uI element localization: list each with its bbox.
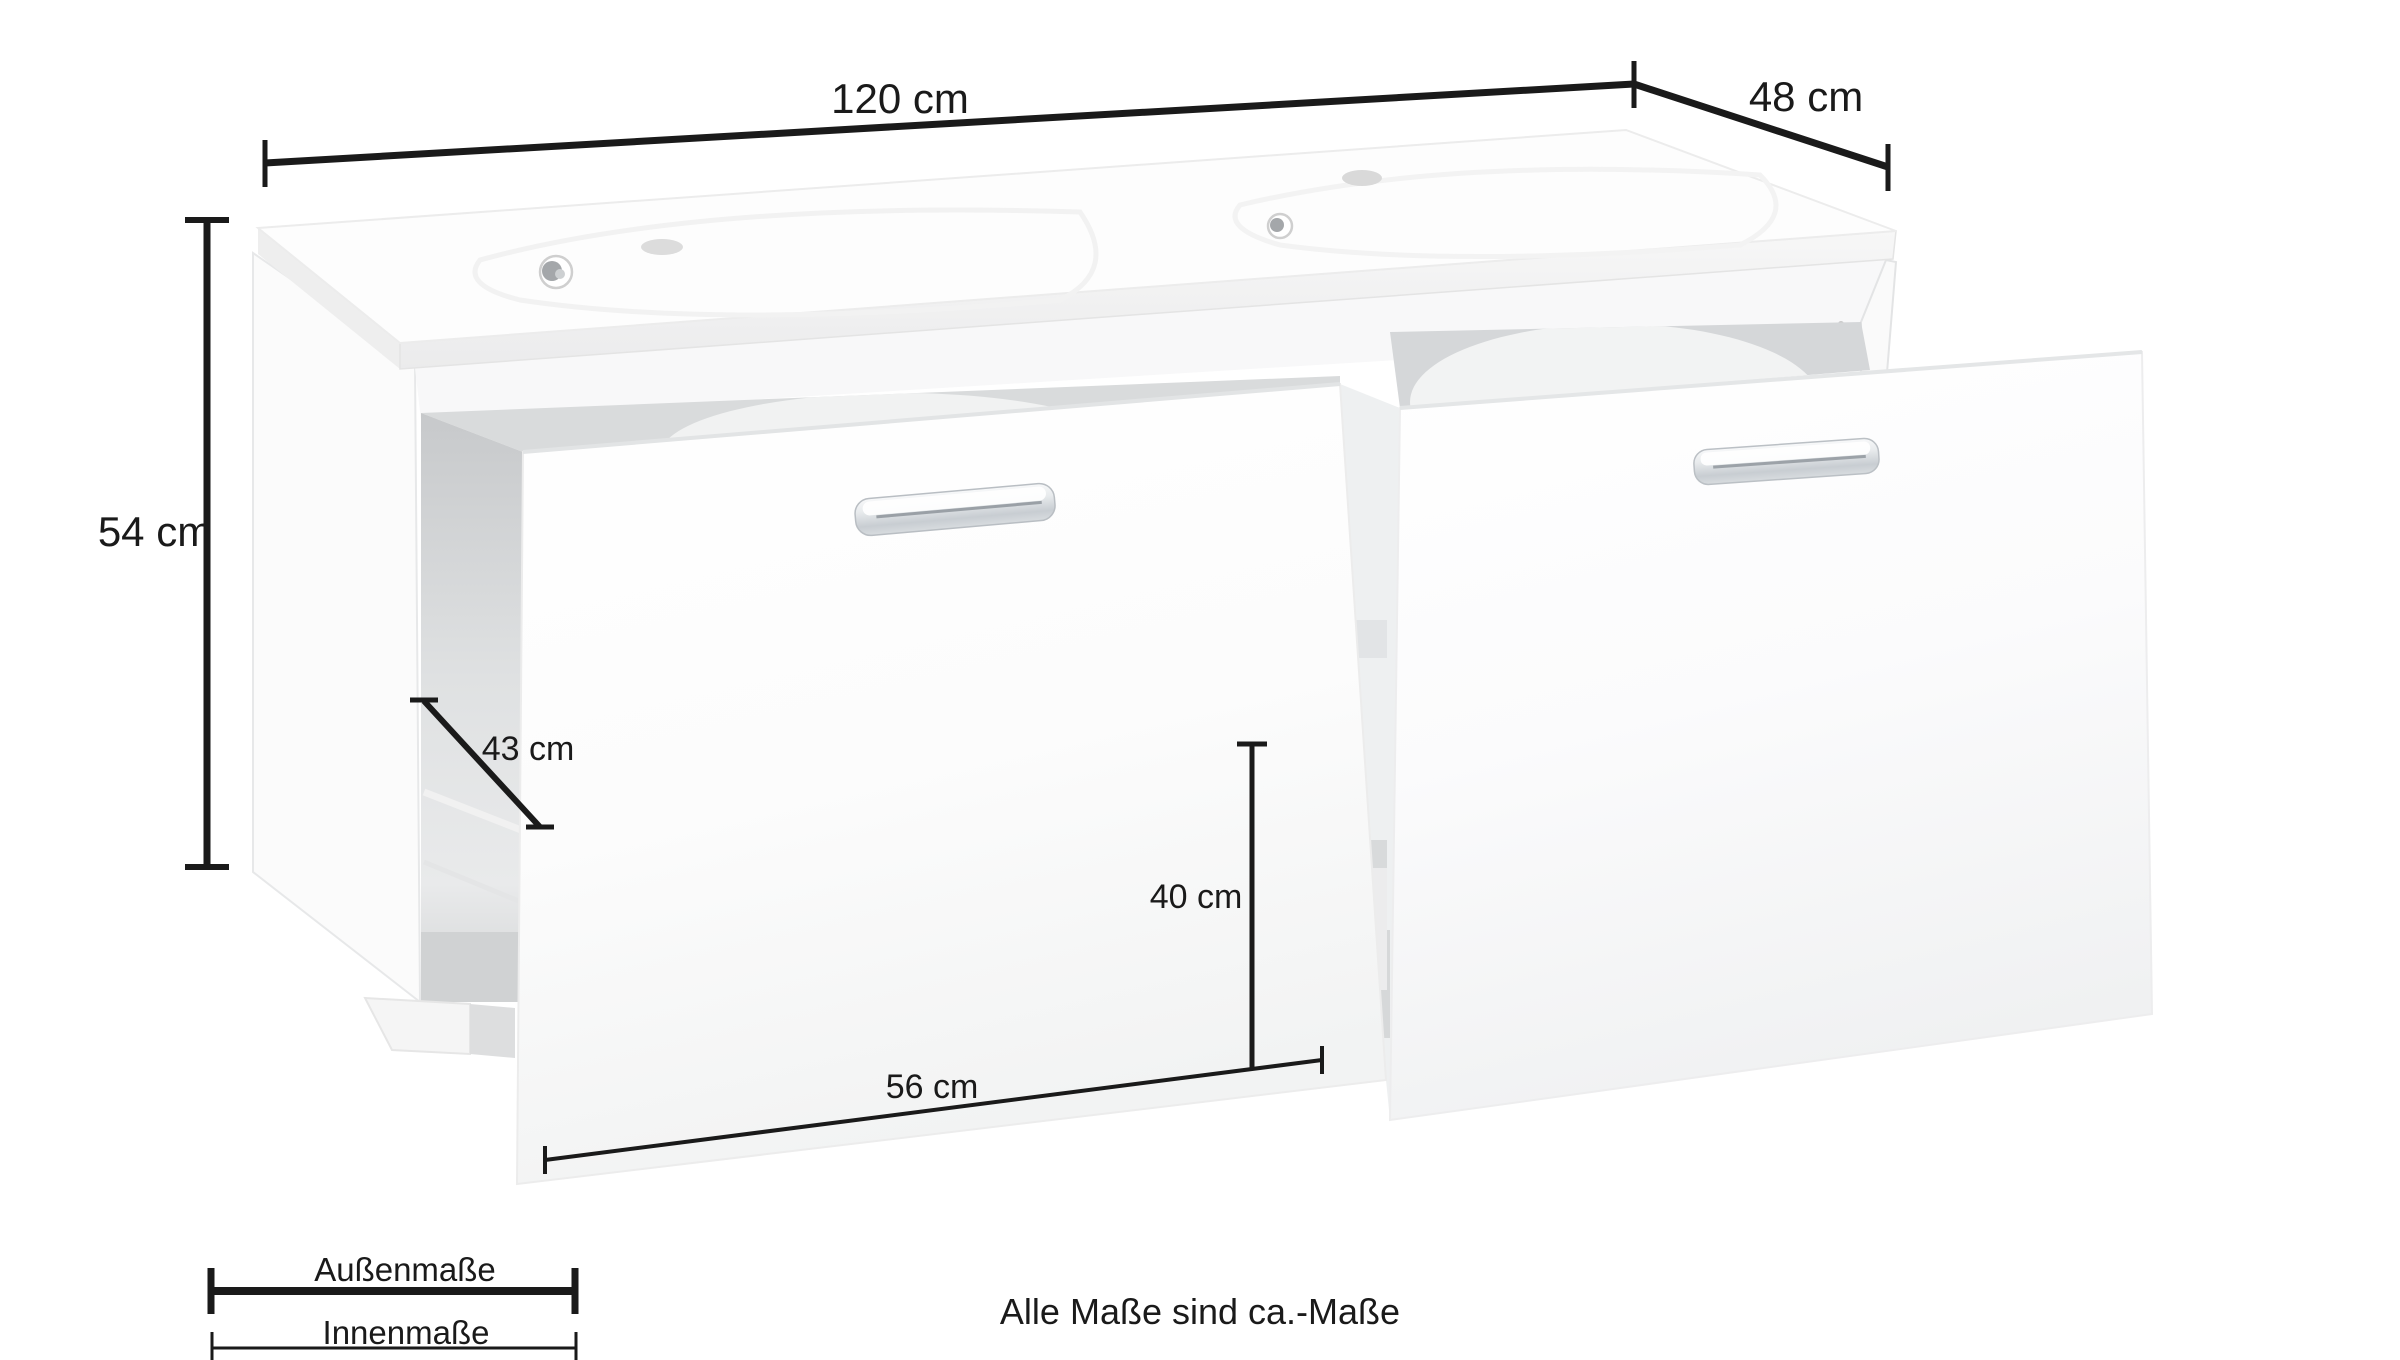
drawer-box-ledge — [365, 998, 470, 1054]
dimension-height-outer: 54 cm — [98, 220, 229, 867]
label-height-outer: 54 cm — [98, 508, 212, 555]
legend-inner-label: Innenmaße — [323, 1314, 490, 1351]
footnote: Alle Maße sind ca.-Maße — [1000, 1291, 1400, 1332]
faucet-hole-shallow-left — [641, 239, 683, 255]
drawer-box-ledge-shadow — [470, 1004, 515, 1058]
label-width-outer: 120 cm — [831, 75, 969, 122]
cavity-bottom-shadow — [421, 932, 523, 1002]
product-dimension-diagram: 120 cm 48 cm 54 cm 43 cm 40 cm — [0, 0, 2400, 1360]
label-depth-inner: 43 cm — [482, 730, 575, 768]
carcass-left-panel — [253, 253, 420, 1002]
vanity-diagram-svg: 120 cm 48 cm 54 cm 43 cm 40 cm — [0, 0, 2400, 1360]
cavity-left-strip — [421, 413, 523, 1002]
legend-outer-label: Außenmaße — [314, 1251, 496, 1288]
label-height-inner: 40 cm — [1150, 878, 1243, 916]
faucet-hole-right-inner — [1270, 218, 1284, 232]
label-width-inner: 56 cm — [886, 1068, 979, 1106]
label-depth-outer: 48 cm — [1749, 73, 1863, 120]
legend: Außenmaße Innenmaße — [210, 1251, 576, 1360]
faucet-hole-left-glint — [555, 269, 565, 279]
gap-rail-piece — [1355, 620, 1387, 658]
faucet-hole-shallow-right — [1342, 170, 1382, 186]
vanity-illustration — [253, 130, 2152, 1184]
